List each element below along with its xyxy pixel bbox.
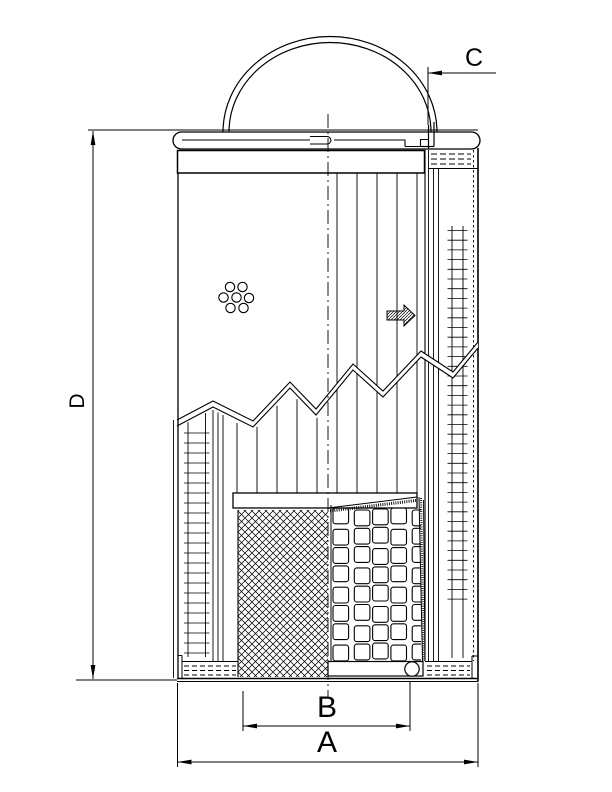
dimension-label-B: B: [317, 691, 337, 724]
filter-element-drawing: D C B A: [0, 0, 612, 792]
inner-mesh-crosshatch: [238, 510, 328, 677]
drawing-page: D C B A: [0, 0, 612, 792]
bypass-hole: [405, 662, 419, 676]
dimension-label-A: A: [317, 726, 337, 759]
dimension-label-D: D: [66, 393, 89, 408]
dimension-label-C: C: [465, 44, 483, 72]
